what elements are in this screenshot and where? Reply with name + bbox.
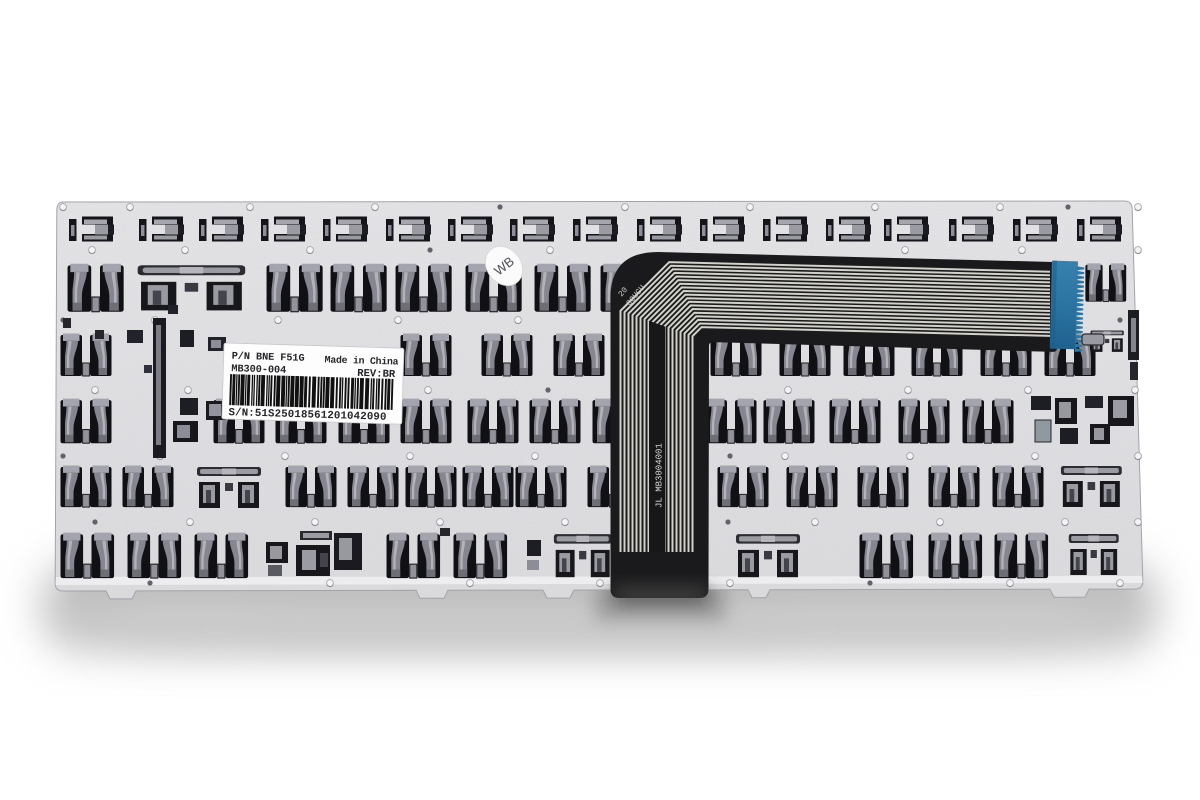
- svg-text:JL MB3004001: JL MB3004001: [655, 443, 665, 508]
- svg-text:Made in China: Made in China: [324, 354, 398, 367]
